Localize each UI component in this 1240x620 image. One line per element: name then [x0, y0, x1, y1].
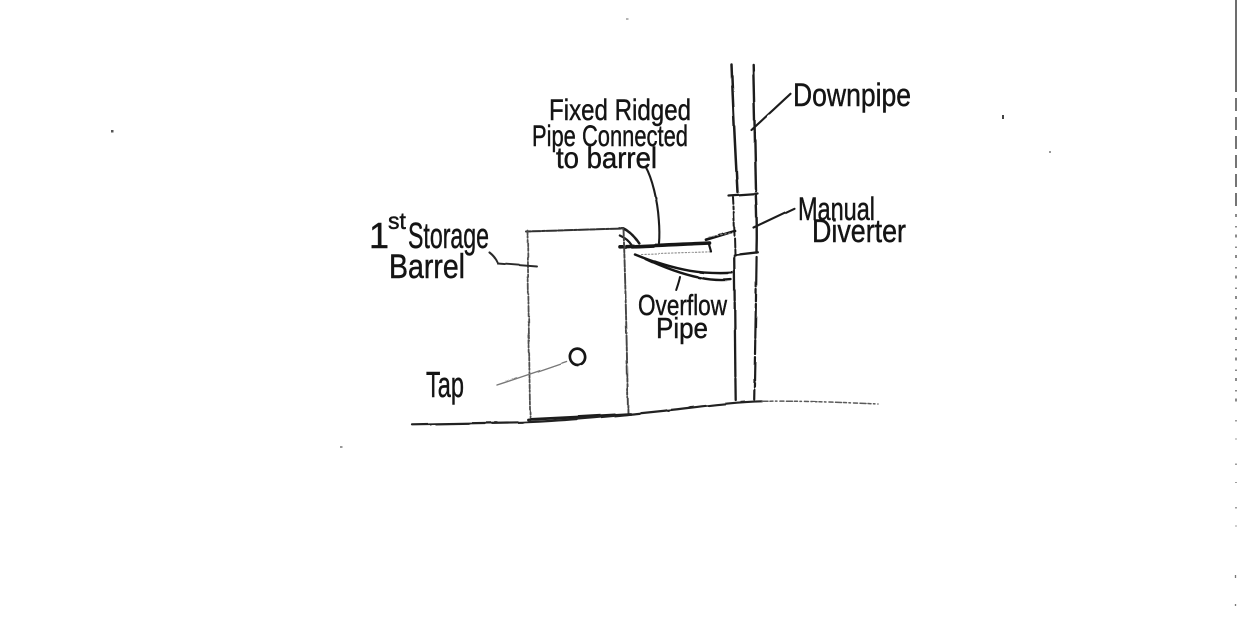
svg-text:Barrel: Barrel	[389, 248, 465, 286]
svg-text:Tap: Tap	[426, 364, 464, 405]
svg-text:to barrel: to barrel	[556, 142, 657, 175]
svg-text:st: st	[388, 208, 407, 234]
svg-text:Downpipe: Downpipe	[793, 77, 911, 113]
svg-text:1: 1	[369, 215, 389, 256]
svg-text:Diverter: Diverter	[812, 213, 906, 249]
svg-text:Pipe: Pipe	[656, 313, 708, 345]
